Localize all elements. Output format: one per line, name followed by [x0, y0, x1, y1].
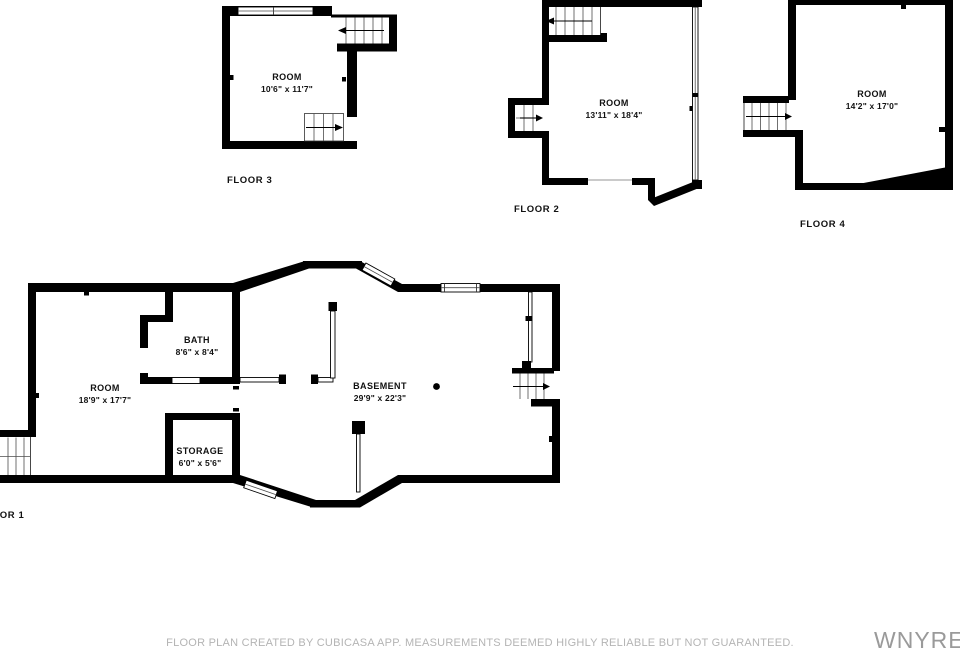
stair-icon [305, 114, 344, 142]
storage-dimensions: 6'0" x 5'6" [179, 458, 222, 468]
floor4-title: FLOOR 4 [800, 219, 845, 230]
room-label: ROOM [272, 72, 302, 82]
floor4-plan: ROOM 14'2" x 17'0" FLOOR 4 [736, 0, 960, 234]
stair-icon [0, 437, 31, 475]
room-dimensions: 18'9" x 17'7" [79, 395, 132, 405]
room-dimensions: 10'6" x 11'7" [261, 84, 313, 94]
sloped-ceiling-area [853, 166, 953, 185]
post-partition [352, 421, 365, 492]
basement-label: BASEMENT [353, 381, 407, 391]
support-column [433, 383, 440, 390]
stair-icon [546, 7, 601, 35]
direction-arrow-icon [543, 383, 550, 390]
direction-arrow-icon [536, 115, 543, 122]
window-symbol [441, 284, 480, 293]
basement-dimensions: 29'9" x 22'3" [354, 393, 407, 403]
floor3-plan: ROOM 10'6" x 11'7" FLOOR 3 [218, 0, 402, 190]
direction-arrow-icon [785, 113, 792, 120]
window-symbol [690, 7, 699, 180]
storage-label: STORAGE [176, 446, 223, 456]
floor2-plan: ROOM 13'11" x 18'4" FLOOR 2 [503, 0, 705, 218]
floor1-plan: ROOM 18'9" x 17'7" BATH 8'6" x 8'4" STOR… [0, 253, 580, 525]
stair-icon [516, 105, 543, 131]
floorplan-canvas: ROOM 10'6" x 11'7" FLOOR 3 [0, 0, 960, 658]
disclaimer-text: FLOOR PLAN CREATED BY CUBICASA APP. MEAS… [0, 637, 960, 649]
room-label: ROOM [857, 89, 887, 99]
door-symbol [172, 378, 200, 384]
room-label: ROOM [599, 98, 629, 108]
bath-label: BATH [184, 335, 210, 345]
bath-dimensions: 8'6" x 8'4" [176, 347, 219, 357]
railing-partition [240, 302, 337, 384]
stair-icon [744, 103, 792, 130]
floor1-walls [0, 261, 560, 508]
watermark-text: WNYREI [874, 627, 960, 654]
floor4-walls [743, 0, 953, 190]
stair-icon [338, 18, 384, 44]
floor3-title: FLOOR 3 [227, 175, 272, 186]
floor1-title: FLOOR 1 [0, 510, 24, 521]
window-symbol [238, 7, 313, 15]
room-dimensions: 13'11" x 18'4" [586, 110, 643, 120]
room-label: ROOM [90, 383, 120, 393]
room-dimensions: 14'2" x 17'0" [846, 101, 899, 111]
floor2-title: FLOOR 2 [514, 204, 559, 215]
direction-arrow-icon [338, 27, 346, 34]
